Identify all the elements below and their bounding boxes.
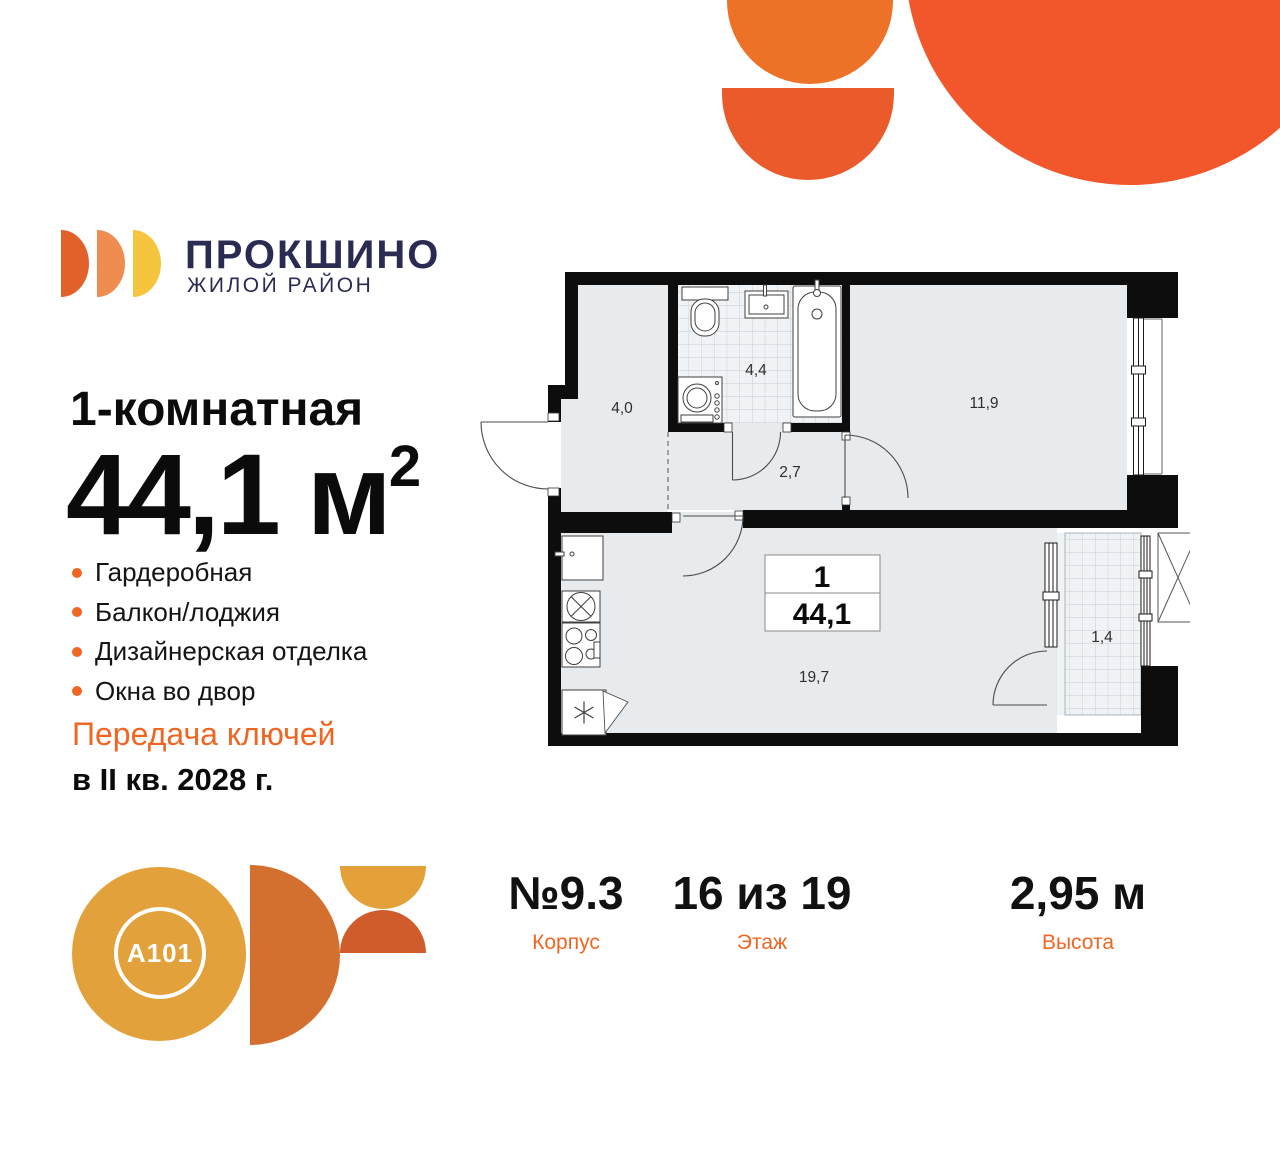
list-item: Окна во двор xyxy=(72,672,367,712)
balcony-outer-window xyxy=(1139,536,1152,666)
handover-line1: Передача ключей xyxy=(72,718,335,750)
handover-line2: в II кв. 2028 г. xyxy=(72,764,273,795)
hob-circle-icon xyxy=(562,591,600,622)
a101-halfdisc-icon xyxy=(250,865,340,1045)
floor-plan: 4,0 4,4 2,7 11,9 19,7 1,4 1 44,1 xyxy=(460,266,1190,756)
bullet-icon xyxy=(72,686,82,696)
list-item: Балкон/лоджия xyxy=(72,593,367,633)
room-area-label: 4,4 xyxy=(745,362,767,379)
decor-halfcircle-small-top xyxy=(727,0,893,84)
a101-logo: A101 xyxy=(114,907,206,999)
bathtub-icon xyxy=(793,280,841,417)
plan-total-area: 44,1 xyxy=(793,598,851,631)
logo-halfdisc-icon xyxy=(97,230,125,297)
list-item: Гардеробная xyxy=(72,553,367,593)
kitchen-sink-icon xyxy=(555,536,603,580)
room-area-label: 19,7 xyxy=(799,669,829,686)
stat-value: №9.3 xyxy=(508,870,623,916)
stat-ceiling-height: 2,95 м Высота xyxy=(1010,870,1146,953)
room-area-label: 4,0 xyxy=(611,400,633,417)
area-value: 44,1 xyxy=(66,431,278,559)
prokshino-logo: ПРОКШИНО ЖИЛОЙ РАЙОН xyxy=(61,230,461,300)
entrance-door xyxy=(481,422,548,489)
ac-unit-icon xyxy=(1158,533,1190,622)
stat-building: №9.3 Корпус xyxy=(508,870,623,953)
bullet-icon xyxy=(72,568,82,578)
decor-halfcircle-small-bottom xyxy=(722,88,894,180)
room-area-label: 1,4 xyxy=(1091,629,1113,646)
feature-label: Окна во двор xyxy=(95,676,255,707)
stat-value: 2,95 м xyxy=(1010,870,1146,916)
feature-label: Дизайнерская отделка xyxy=(95,636,367,667)
area-unit: м xyxy=(307,431,389,559)
stove-icon xyxy=(562,623,600,667)
stat-value: 16 из 19 xyxy=(672,870,851,916)
logo-halfdisc-icon xyxy=(61,230,89,297)
stat-floor: 16 из 19 Этаж xyxy=(672,870,851,953)
area-exponent: 2 xyxy=(389,434,421,499)
a101-label: A101 xyxy=(127,938,193,969)
bullet-icon xyxy=(72,647,82,657)
room-area-label: 2,7 xyxy=(779,464,801,481)
list-item: Дизайнерская отделка xyxy=(72,632,367,672)
balcony-floor xyxy=(1065,533,1141,715)
stat-label: Высота xyxy=(1010,932,1146,953)
feature-label: Балкон/лоджия xyxy=(95,597,280,628)
logo-halfdisc-icon xyxy=(133,230,161,297)
a101-hourglass-top-icon xyxy=(340,866,426,909)
plan-info-box: 1 44,1 xyxy=(765,555,880,631)
stat-label: Этаж xyxy=(672,932,851,953)
feature-list: Гардеробная Балкон/лоджия Дизайнерская о… xyxy=(72,553,367,711)
apartment-area: 44,1 м2 xyxy=(66,438,421,553)
bedroom-window xyxy=(1132,318,1163,475)
washing-machine-icon xyxy=(678,377,722,423)
room-area-label: 11,9 xyxy=(969,395,998,412)
brand-name: ПРОКШИНО xyxy=(185,235,440,275)
bullet-icon xyxy=(72,607,82,617)
plan-rooms-count: 1 xyxy=(814,561,831,594)
listing-card: { "brand": { "name": "ПРОКШИНО", "taglin… xyxy=(0,0,1280,1160)
apartment-type-title: 1-комнатная xyxy=(70,386,363,434)
balcony-inner-window xyxy=(1043,543,1059,647)
decor-big-circle xyxy=(905,0,1280,185)
brand-tagline: ЖИЛОЙ РАЙОН xyxy=(187,275,373,296)
stat-label: Корпус xyxy=(508,932,623,953)
a101-hourglass-bottom-icon xyxy=(340,910,426,953)
feature-label: Гардеробная xyxy=(95,557,252,588)
